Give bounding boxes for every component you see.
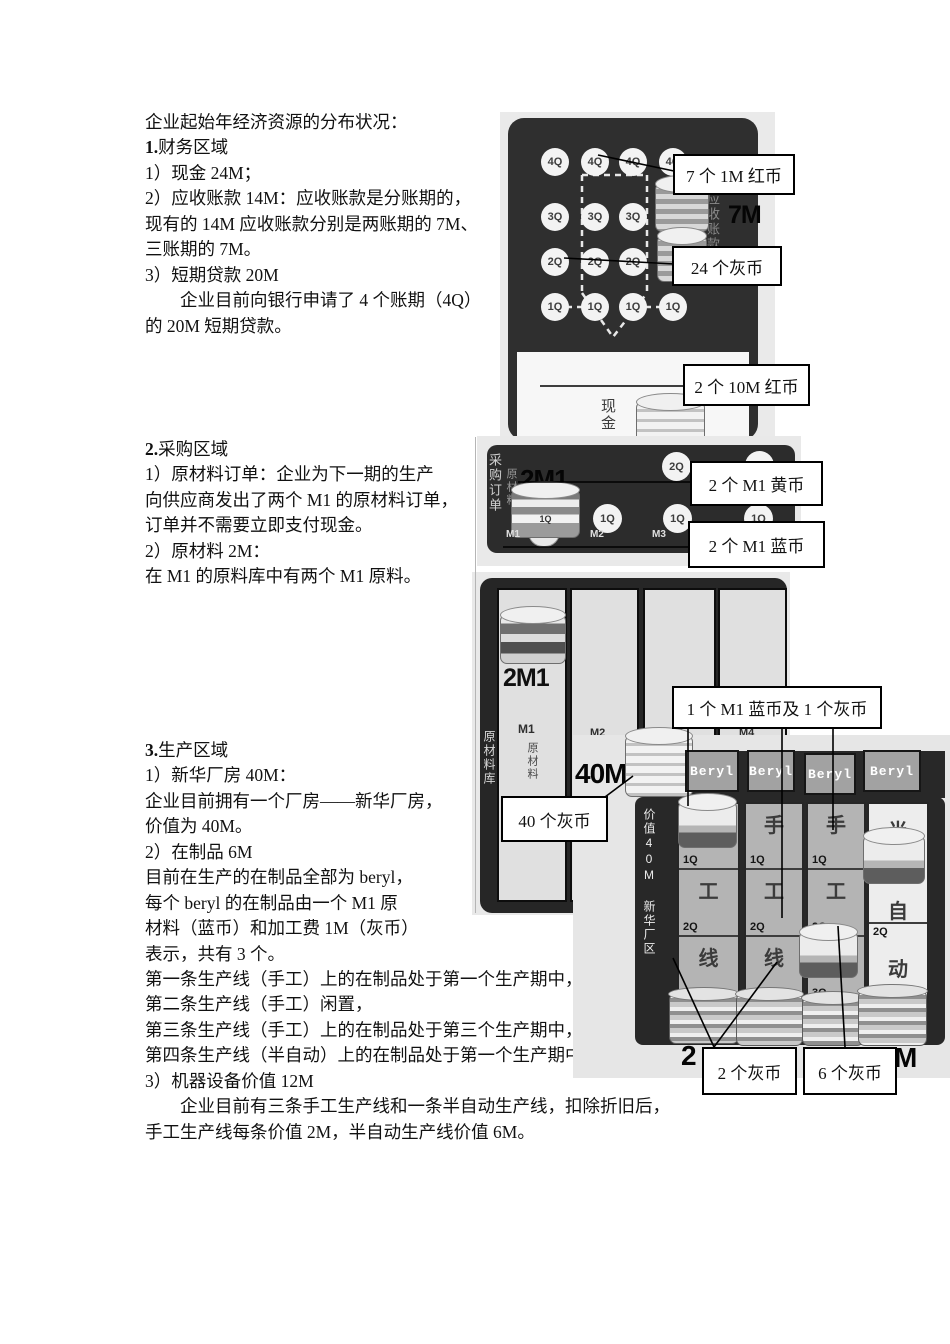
text-line: 企业目前有三条手工生产线和一条半自动生产线，扣除折旧后，: [145, 1094, 615, 1119]
machine-value-partial-left: 2: [681, 1040, 696, 1072]
machine-coin-base-line2: [736, 993, 803, 1046]
text-line: 第三条生产线（手工）上的在制品处于第三个生产期中，: [145, 1018, 615, 1043]
order-coin-stack-m1: 1Q: [511, 489, 580, 538]
quarter-circle-3q: 3Q: [541, 203, 569, 231]
quarter-circle-2q: 2Q: [541, 248, 569, 276]
segment-divider: [869, 922, 927, 924]
callout-2-m1-blue-coins: 2 个 M1 蓝币: [688, 521, 825, 568]
callout-40-gray-coins: 40 个灰币: [501, 796, 608, 842]
text-line: 表示，共有 3 个。: [145, 942, 615, 967]
factory-value-label: 40M: [575, 758, 626, 790]
quarter-circle-2q: 2Q: [619, 248, 647, 276]
quarter-circle-4q: 4Q: [541, 148, 569, 176]
factory-coin-stack-40m: [625, 735, 693, 797]
product-card-beryl: Beryl: [747, 750, 795, 792]
slot-label-m1: M1: [506, 529, 520, 540]
product-card-beryl: Beryl: [685, 750, 739, 792]
callout-2-gray-coins: 2 个灰币: [702, 1047, 797, 1095]
text-line: 第四条生产线（半自动）上的在制品处于第一个生产期中。: [145, 1043, 615, 1068]
text-line: 第二条生产线（手工）闲置，: [145, 992, 615, 1017]
line-segment: 手1Q: [808, 804, 864, 870]
quarter-circle-1q: 1Q: [659, 293, 687, 321]
wip-coin-stack-line4: [863, 835, 925, 884]
text-line: 3）机器设备价值 12M: [145, 1069, 615, 1094]
procurement-side-label: 采购订单: [485, 453, 504, 549]
machine-coin-base-line1: [669, 993, 739, 1044]
text-line: 手工生产线每条价值 2M，半自动生产线价值 6M。: [145, 1120, 615, 1145]
quarter-circle-4q: 4Q: [581, 148, 609, 176]
document-page: { "document": { "sections": [ { "heading…: [0, 0, 950, 1344]
product-card-beryl: Beryl: [804, 753, 856, 795]
warehouse-side-label: 原材料库: [481, 730, 498, 818]
callout-7-red-coins: 7 个 1M 红币: [673, 154, 795, 195]
text-line: 第一条生产线（手工）上的在制品处于第一个生产期中，: [145, 967, 615, 992]
callout-24-gray-coins: 24 个灰币: [672, 246, 782, 286]
warehouse-quantity-label: 2M1: [503, 664, 549, 693]
quarter-circle-3q: 3Q: [619, 203, 647, 231]
line-segment: 手1Q: [746, 804, 802, 870]
slot-label-m2: M2: [590, 529, 604, 540]
receivables-amount: 7M: [728, 201, 761, 230]
quarter-circle-3q: 3Q: [581, 203, 609, 231]
factory-value-side-label: 价值40M: [641, 808, 658, 892]
warehouse-slot-m1: M1: [518, 722, 535, 736]
factory-zone-side-label: 新华厂区: [641, 900, 658, 980]
quarter-circle-2q: 2Q: [581, 248, 609, 276]
product-card-beryl: Beryl: [863, 750, 921, 792]
quarter-circle-1q: 1Q: [619, 293, 647, 321]
callout-2-m1-yellow-coins: 2 个 M1 黄币: [690, 461, 823, 506]
line-segment: 工2Q: [746, 870, 802, 936]
order-coin-band-label: 1Q: [512, 514, 579, 524]
quarter-circle-4q: 4Q: [619, 148, 647, 176]
line-segment: 工2Q: [679, 870, 738, 936]
slot-label-m3: M3: [652, 529, 666, 540]
wip-coin-stack-line3: [799, 931, 858, 978]
material-coin-stack-m1: [500, 614, 566, 664]
production-line-2-manual: 手1Q 工2Q 线3Q: [744, 802, 804, 1003]
photo-edge-line: [475, 437, 476, 913]
text-line: 材料（蓝币）和加工费 1M（灰币）: [145, 916, 615, 941]
quarter-circle-1q: 1Q: [541, 293, 569, 321]
leadtime-circle-2q: 2Q: [662, 452, 691, 481]
callout-wip-coins: 1 个 M1 蓝币及 1 个灰币: [672, 686, 882, 729]
machine-coin-base-line3: [802, 997, 864, 1046]
machine-value-partial-right: M: [894, 1042, 916, 1074]
quarter-circle-1q: 1Q: [581, 293, 609, 321]
callout-2-10m-red-coins: 2 个 10M 红币: [683, 364, 810, 406]
machine-coin-base-line4: [858, 990, 927, 1046]
callout-6-gray-coins: 6 个灰币: [803, 1047, 897, 1095]
wip-coin-stack-line1: [678, 801, 737, 848]
